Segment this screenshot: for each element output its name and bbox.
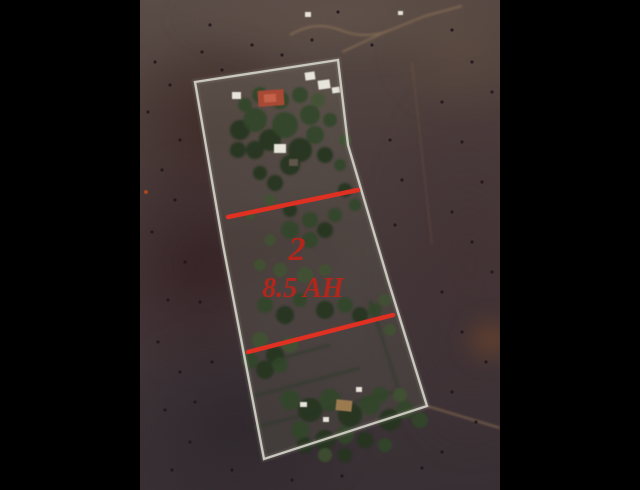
screenshot-stage: 2 8.5 AH [0,0,640,490]
parcel-number-label: 2 [288,231,306,268]
letterbox-right [500,0,640,490]
letterbox-left [0,0,140,490]
red-roof-building-ridge [264,94,277,103]
satellite-photo: 2 8.5 AH [140,0,500,490]
tan-roof-building [335,399,352,412]
dark-shed [289,159,298,166]
map-overlay: 2 8.5 AH [140,0,500,490]
orange-speck [144,190,148,194]
parcel-area-label: 8.5 AH [262,273,345,304]
